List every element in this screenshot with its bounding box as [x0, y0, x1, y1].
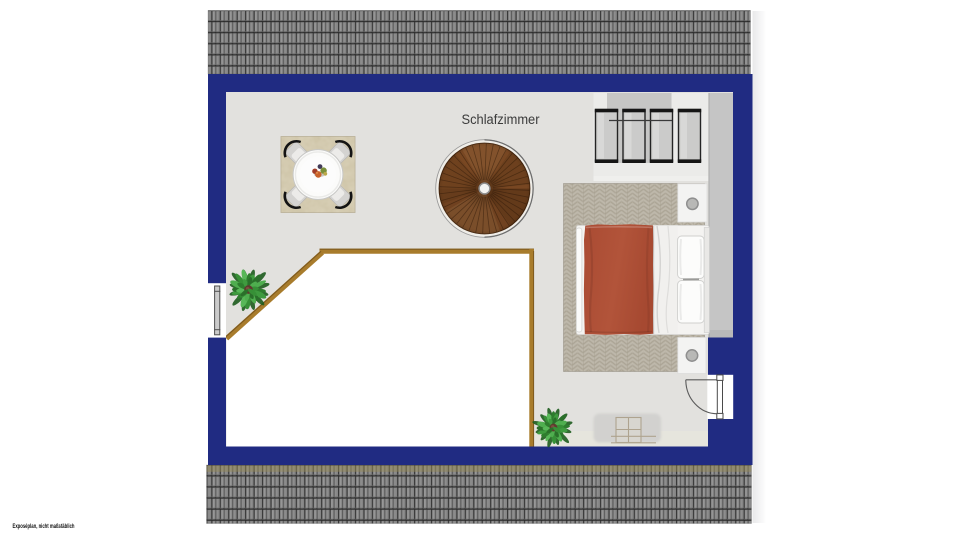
svg-text:Schlafzimmer: Schlafzimmer	[462, 112, 540, 127]
svg-text:Exposéplan, nicht maßstäblich: Exposéplan, nicht maßstäblich	[13, 523, 75, 530]
